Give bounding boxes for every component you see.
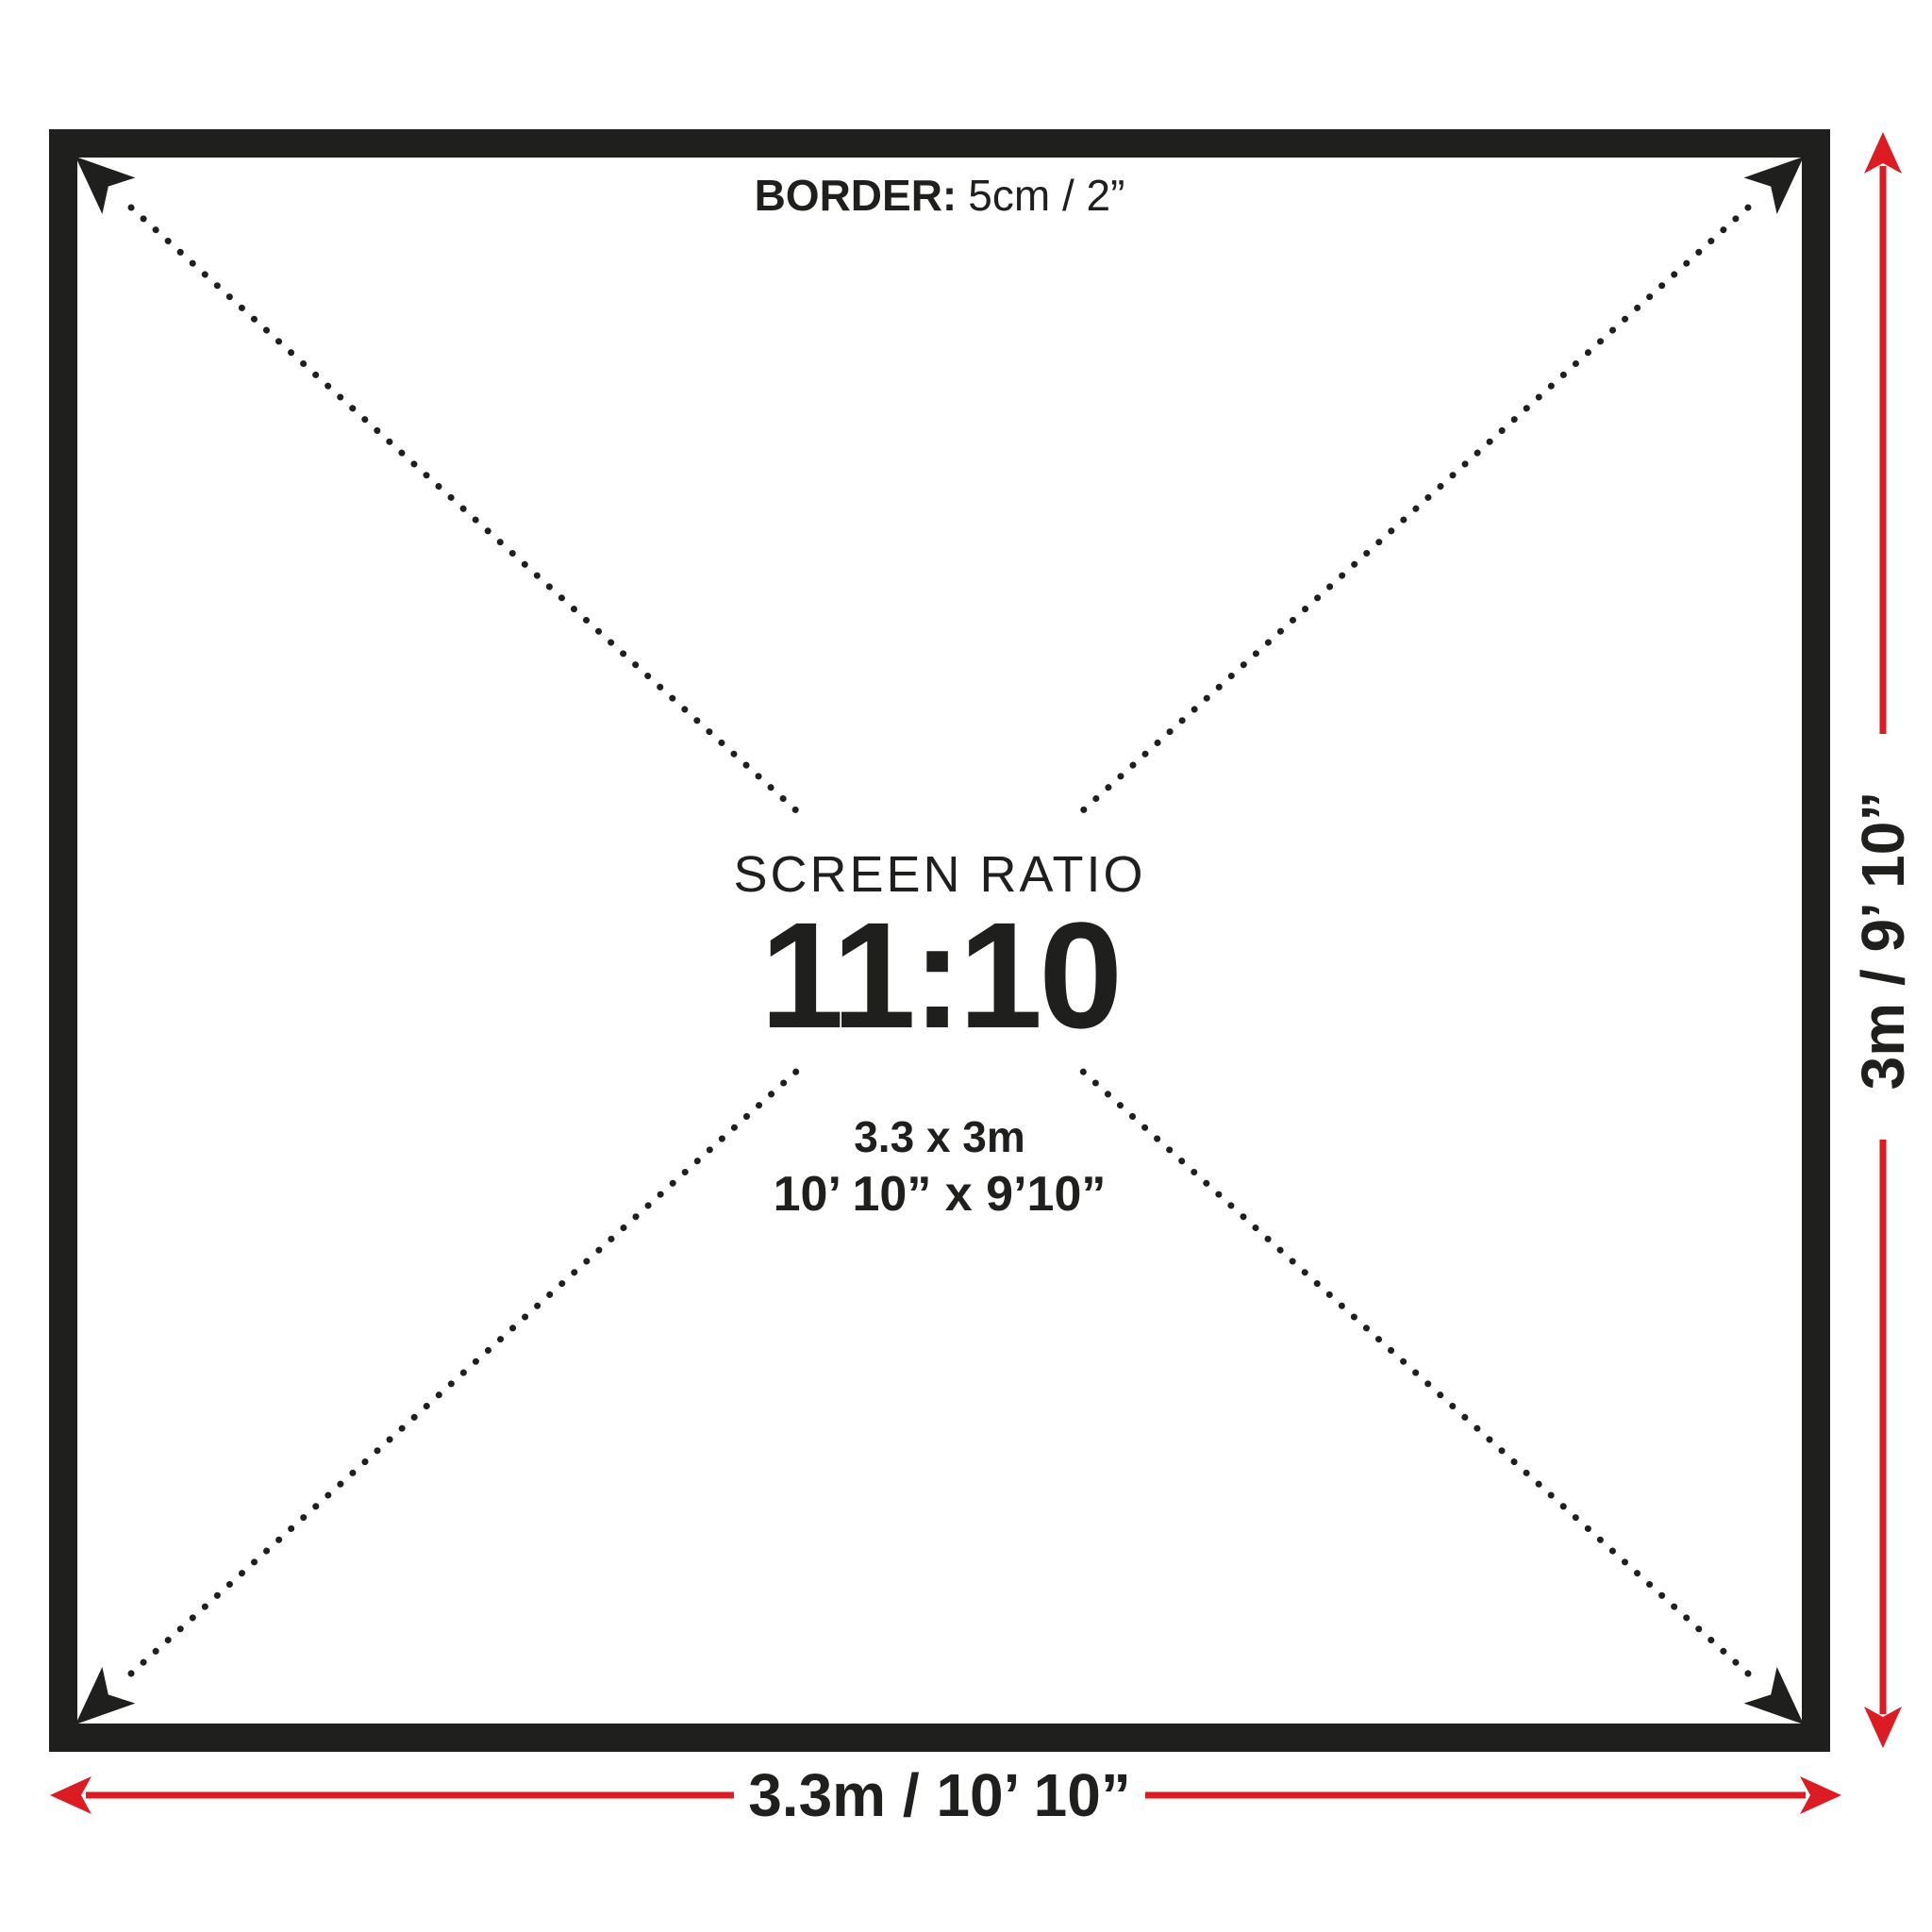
corner-arrow-icon — [1744, 1667, 1804, 1724]
screen-info-block: SCREEN RATIO 11:10 3.3 x 3m 10’ 10” x 9’… — [733, 849, 1145, 1219]
screen-ratio-value: 11:10 — [760, 900, 1119, 1051]
corner-arrow-icon — [1744, 157, 1804, 214]
screen-size-imperial: 10’ 10” x 9’10” — [774, 1170, 1107, 1219]
corner-arrow-icon — [75, 157, 135, 214]
screen-dimension-diagram: BORDER:5cm / 2” SCREEN RATIO 11:10 3.3 x… — [0, 0, 1932, 1932]
dimension-arrow-icon — [50, 1776, 92, 1814]
screen-size-metric: 3.3 x 3m — [854, 1115, 1025, 1158]
height-dimension-label: 3m / 9’ 10” — [1853, 791, 1913, 1091]
diagonal-dotted-line-bottom-right — [1082, 1071, 1748, 1674]
diagonal-dotted-line-top-right — [1082, 208, 1748, 811]
corner-arrow-icon — [75, 1667, 135, 1724]
diagonal-dotted-line-top-left — [131, 208, 797, 811]
border-note-value: 5cm / 2” — [968, 171, 1124, 220]
dimension-arrow-icon — [1800, 1776, 1841, 1814]
border-note-label: BORDER: — [755, 171, 958, 220]
border-note: BORDER:5cm / 2” — [755, 174, 1125, 217]
diagonal-dotted-line-bottom-left — [131, 1071, 797, 1674]
width-dimension-label: 3.3m / 10’ 10” — [748, 1765, 1131, 1825]
